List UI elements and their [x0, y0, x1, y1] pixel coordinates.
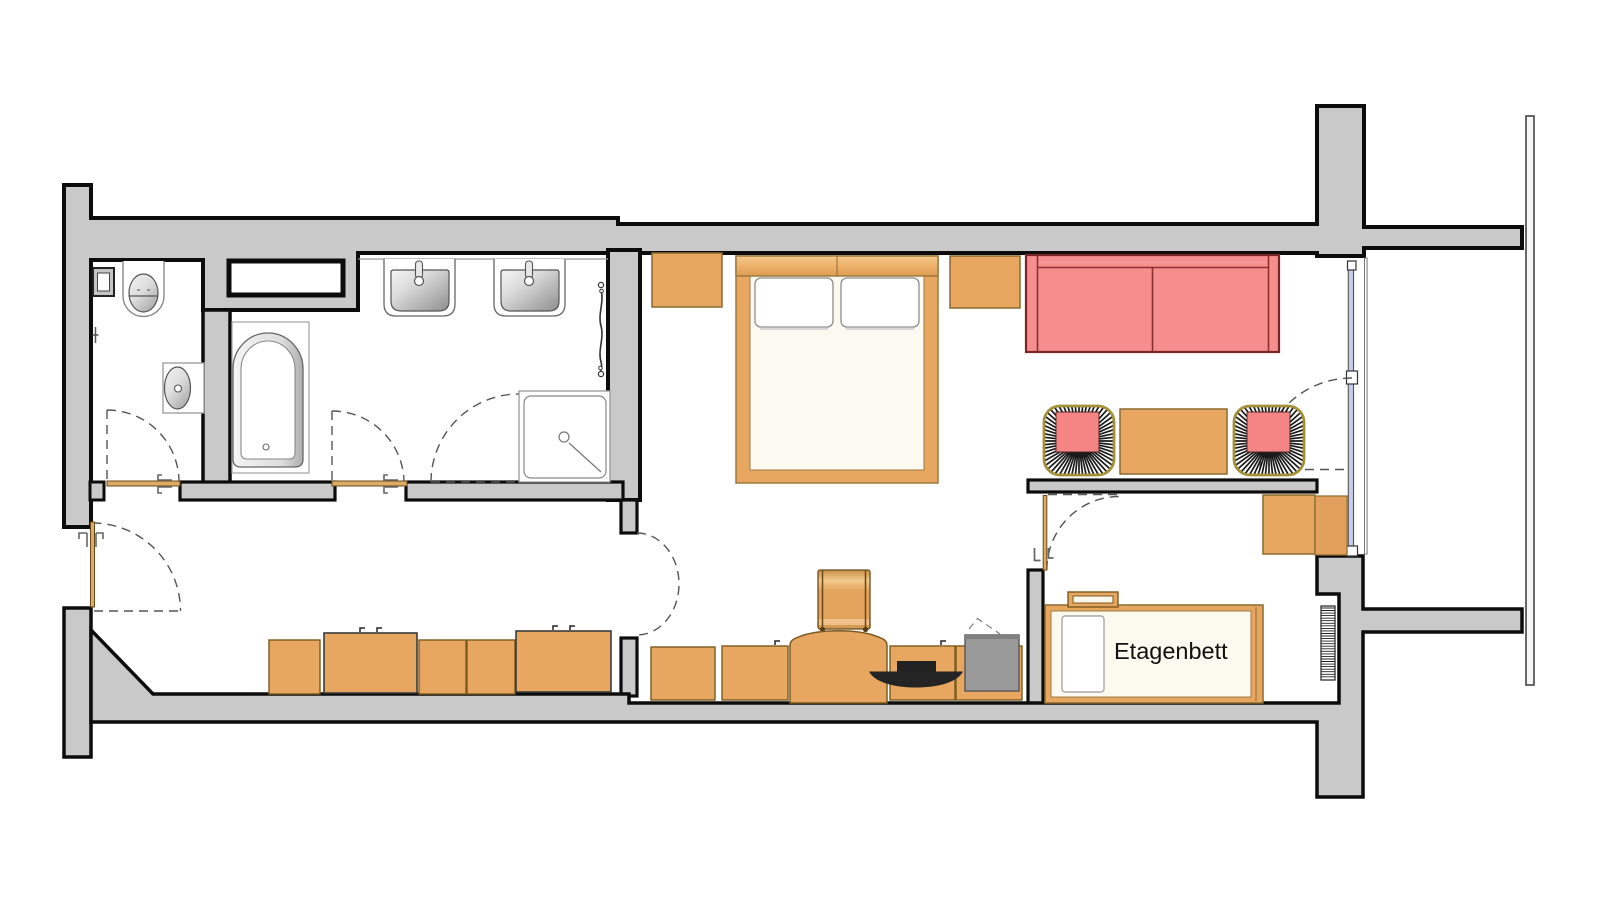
svg-text:Etagenbett: Etagenbett: [1114, 638, 1228, 664]
